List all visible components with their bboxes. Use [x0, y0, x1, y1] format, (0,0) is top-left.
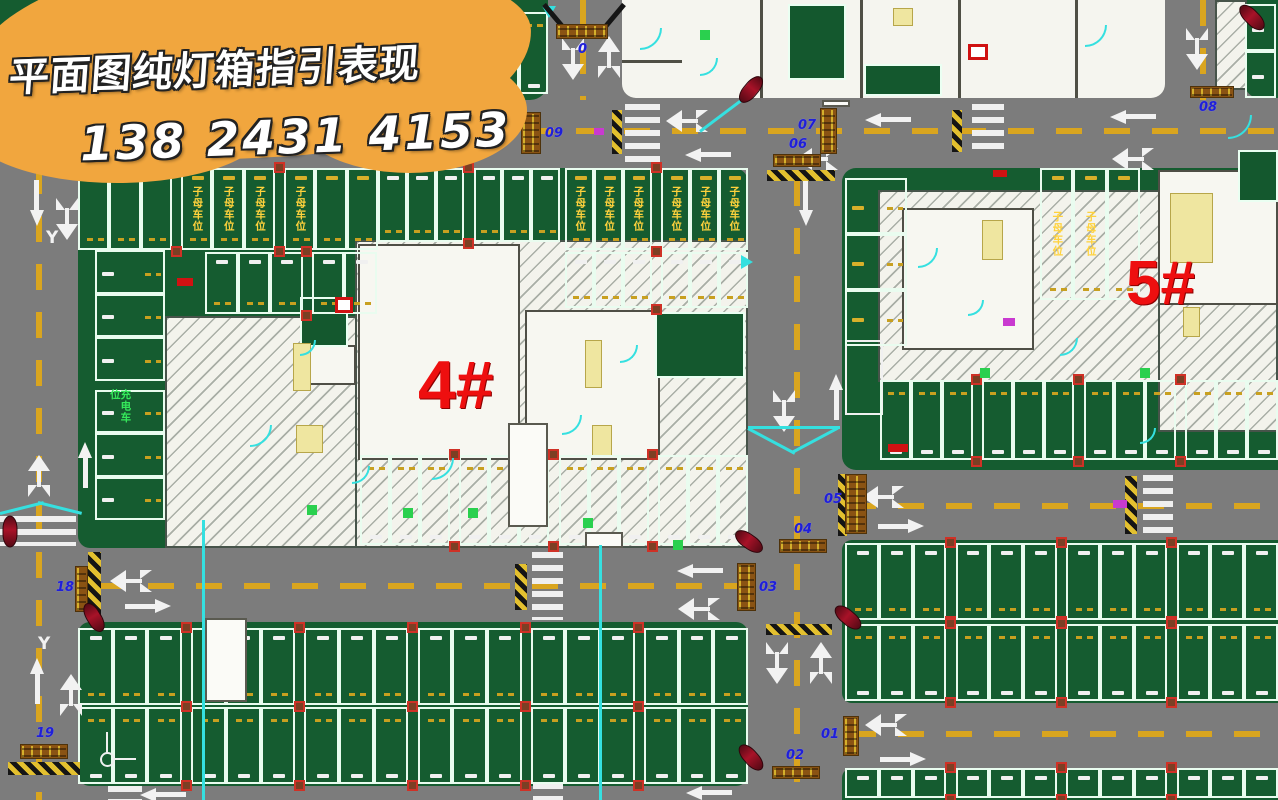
- parking-stall: [1210, 543, 1244, 620]
- arrow-tail: [73, 704, 82, 716]
- zebra-crossing: [532, 552, 563, 620]
- ornate-arrow: [1112, 148, 1154, 170]
- arrow-head: [685, 148, 701, 162]
- stall-number: [633, 260, 645, 264]
- stall-number: [499, 535, 511, 539]
- stall-number: [102, 498, 114, 502]
- parking-stall: [459, 455, 489, 545]
- stall-number: [370, 535, 382, 539]
- arrow-tail: [810, 672, 819, 684]
- stall-dashes: [1076, 636, 1094, 639]
- stall-dashes: [1076, 608, 1094, 611]
- stall-number: [1035, 551, 1047, 555]
- stall-dashes: [654, 719, 672, 722]
- column-marker: [1175, 374, 1186, 385]
- parking-stall: [690, 252, 719, 308]
- lightbox: [556, 24, 608, 39]
- ramp-line: [38, 501, 82, 515]
- building-5-label: 5#: [1126, 248, 1195, 319]
- parking-stall: 子母车位: [244, 168, 275, 250]
- parking-stall: [1066, 543, 1100, 620]
- parking-stall: [304, 628, 339, 705]
- arrow-shaft: [125, 604, 157, 609]
- stall-number: [317, 636, 329, 640]
- stall-dashes: [889, 608, 907, 611]
- stall-dashes: [481, 230, 499, 233]
- parking-stall: [644, 628, 679, 705]
- ornate-arrow: [598, 36, 620, 78]
- zebra-crossing: [1143, 475, 1173, 535]
- parking-stall: [989, 768, 1023, 798]
- stall-dashes: [1186, 608, 1204, 611]
- parking-stall: 子母车位: [719, 168, 748, 250]
- parking-stall: [594, 252, 623, 308]
- stall-dashes: [324, 238, 342, 241]
- parking-stall: [147, 707, 182, 784]
- parking-stall: 子母车位: [284, 168, 315, 250]
- stall-dashes: [654, 693, 672, 696]
- arrow-tail: [56, 198, 65, 210]
- fire-equipment-mark: [888, 444, 908, 452]
- stall-dashes: [1110, 608, 1128, 611]
- stall-dashes: [158, 719, 176, 722]
- parking-stall: [261, 628, 296, 705]
- magenta-annotation: [1003, 318, 1015, 326]
- stall-dashes: [1220, 608, 1238, 611]
- stall-dashes: [145, 316, 161, 319]
- ornate-arrow: [865, 714, 907, 736]
- parking-stall: [113, 707, 148, 784]
- column-marker: [548, 449, 559, 460]
- parking-stall: [619, 455, 649, 545]
- stall-number: [967, 551, 979, 555]
- parking-stall: [147, 628, 182, 705]
- parking-stall: [191, 707, 226, 784]
- column-marker: [181, 701, 192, 712]
- road-arrow: [865, 113, 911, 127]
- stall-number: [125, 774, 137, 778]
- shaft-room: [592, 425, 612, 457]
- stall-dashes: [1254, 608, 1272, 611]
- stall-number: [1078, 551, 1090, 555]
- arrow-tail: [708, 598, 720, 607]
- arrow-head: [140, 788, 156, 800]
- lightbox-number: 04: [794, 522, 812, 537]
- green-room: [864, 64, 942, 96]
- parking-stall: [1247, 380, 1278, 460]
- arrow-tail: [60, 704, 69, 716]
- exit-door-marker: [307, 505, 317, 515]
- column-marker: [1166, 762, 1177, 773]
- stall-dashes: [1033, 608, 1051, 611]
- parking-stall: [1044, 380, 1075, 460]
- lightbox-ticks: [845, 718, 857, 754]
- family-stall-label: 子母车位: [1085, 211, 1096, 257]
- exit-door-marker: [583, 518, 593, 528]
- parking-stall: [304, 707, 339, 784]
- stall-number: [281, 260, 293, 264]
- stall-dashes: [1186, 636, 1204, 639]
- stall-dashes: [510, 230, 528, 233]
- parking-stall: [374, 628, 409, 705]
- arrow-tail: [1142, 161, 1154, 170]
- arrow-shaft: [878, 524, 910, 529]
- stall-dashes: [293, 238, 311, 241]
- arrow-head: [829, 374, 843, 390]
- parking-row: 充电车位: [95, 250, 167, 520]
- arrow-shaft: [154, 792, 186, 797]
- parking-stall: [418, 628, 453, 705]
- column-marker: [1073, 374, 1084, 385]
- arrow-tail: [779, 642, 788, 654]
- stall-dashes: [497, 719, 515, 722]
- arrow-head: [865, 113, 881, 127]
- lightbox-ticks: [775, 156, 819, 165]
- arrow-shaft: [700, 790, 732, 795]
- ucs-axis-icon: [106, 732, 108, 754]
- parking-stall: [261, 707, 296, 784]
- column-marker: [633, 701, 644, 712]
- road-arrow: [685, 148, 731, 162]
- stall-dashes: [1144, 636, 1162, 639]
- parking-stall: [644, 707, 679, 784]
- arrow-shaft: [34, 180, 39, 212]
- family-stall-label: 子母车位: [192, 186, 203, 232]
- column-marker: [1056, 618, 1067, 629]
- parking-stall: [600, 707, 635, 784]
- lightbox: [737, 563, 756, 611]
- stall-number: [102, 455, 114, 459]
- arrow-head: [1110, 110, 1126, 124]
- stall-dashes: [887, 263, 903, 266]
- stall-number: [1112, 691, 1124, 695]
- stall-dashes: [597, 467, 615, 470]
- arrow-tail: [598, 66, 607, 78]
- column-marker: [651, 162, 662, 173]
- stall-dashes: [689, 693, 707, 696]
- road-arrow: [829, 374, 843, 420]
- arrow-head: [686, 786, 702, 800]
- stall-dashes: [158, 693, 176, 696]
- parking-stall: [95, 294, 165, 338]
- arrow-shaft: [775, 652, 779, 672]
- parking-stall: [531, 628, 566, 705]
- arrow-shaft: [607, 48, 611, 68]
- lightbox: [820, 108, 837, 154]
- stall-dashes: [1092, 392, 1110, 395]
- family-stall-label: 子母车位: [295, 186, 306, 232]
- promo-banner: 平面图纯灯箱指引表现 138 2431 4153: [0, 0, 537, 173]
- outlined-room: [845, 340, 883, 415]
- green-room: [655, 312, 745, 378]
- stall-number: [857, 691, 869, 695]
- stall-dashes: [428, 719, 446, 722]
- column-marker: [181, 780, 192, 791]
- red-symbol-box: [968, 44, 988, 60]
- parking-stall: [1134, 624, 1168, 701]
- stall-number: [857, 551, 869, 555]
- column-marker: [945, 697, 956, 708]
- car-icon: [732, 526, 767, 557]
- zebra-crossing: [108, 786, 142, 800]
- ornate-arrow: [678, 598, 720, 620]
- stall-number: [967, 776, 979, 780]
- stall-number: [1035, 776, 1047, 780]
- lightbox-number: 08: [1199, 100, 1217, 115]
- shaft-room: [296, 425, 323, 453]
- parking-stall: [879, 624, 913, 701]
- parking-stall: [713, 628, 748, 705]
- arrow-shaft: [37, 467, 41, 487]
- arrow-shaft: [834, 388, 839, 420]
- parking-stall: [1177, 624, 1211, 701]
- lightbox-ticks: [558, 26, 606, 37]
- parking-stall: [942, 380, 973, 460]
- ucs-axis-icon: [114, 758, 136, 760]
- parking-stall: [600, 628, 635, 705]
- parking-row: [880, 380, 1278, 462]
- stall-dashes: [221, 238, 239, 241]
- parking-row: 子母车位子母车位子母车位子母车位子母车位子母车位: [565, 168, 748, 252]
- parking-stall: [1216, 380, 1247, 460]
- zebra-crossing: [972, 104, 1004, 156]
- stall-number: [633, 176, 645, 180]
- stall-number: [430, 636, 442, 640]
- stall-number: [430, 535, 442, 539]
- family-stall-label: 子母车位: [633, 186, 644, 232]
- stall-number: [1252, 75, 1264, 79]
- parking-stall: [452, 707, 487, 784]
- stall-dashes: [414, 230, 432, 233]
- stall-number: [656, 774, 668, 778]
- magenta-annotation: [1113, 500, 1127, 508]
- arrow-head: [78, 442, 92, 458]
- parking-stall: [407, 168, 436, 242]
- column-marker: [1073, 456, 1084, 467]
- stall-dashes: [368, 467, 386, 470]
- stall-number: [1085, 176, 1097, 180]
- stall-number: [952, 450, 964, 454]
- parking-stall: [1100, 624, 1134, 701]
- parking-stall: [623, 252, 652, 308]
- arrow-shaft: [803, 180, 808, 212]
- parking-stall: [347, 168, 378, 250]
- stall-number: [465, 636, 477, 640]
- stall-dashes: [923, 636, 941, 639]
- stall-number: [604, 176, 616, 180]
- stall-number: [543, 774, 555, 778]
- stall-dashes: [385, 230, 403, 233]
- stall-dashes: [252, 238, 270, 241]
- stall-dashes: [88, 719, 106, 722]
- stall-number: [1146, 776, 1158, 780]
- stall-number: [891, 691, 903, 695]
- stall-dashes: [145, 456, 161, 459]
- column-marker: [633, 780, 644, 791]
- parking-row: [845, 178, 909, 346]
- stall-number: [1188, 776, 1200, 780]
- parking-stall: [1013, 380, 1044, 460]
- ornate-arrow: [1186, 28, 1208, 70]
- stall-dashes: [123, 719, 141, 722]
- parking-stall: [688, 455, 718, 545]
- parking-stall: 子母车位: [690, 168, 719, 250]
- parking-stall: [1245, 51, 1276, 98]
- stall-number: [102, 359, 114, 363]
- column-marker: [945, 618, 956, 629]
- stall-number: [925, 691, 937, 695]
- stall-number: [569, 535, 581, 539]
- exit-door-marker: [700, 30, 710, 40]
- column-marker: [463, 238, 474, 249]
- stall-number: [386, 636, 398, 640]
- parking-stall: [1066, 624, 1100, 701]
- stall-number: [90, 774, 102, 778]
- stall-dashes: [1050, 288, 1068, 291]
- family-stall-label: 子母车位: [671, 186, 682, 232]
- stall-number: [1256, 551, 1268, 555]
- road-arrow: [686, 786, 732, 800]
- column-marker: [294, 622, 305, 633]
- stall-dashes: [315, 693, 333, 696]
- road-arrow: [880, 752, 926, 766]
- stall-number: [1078, 691, 1090, 695]
- stall-dashes: [669, 296, 687, 299]
- stall-number: [529, 535, 541, 539]
- shaft-room: [893, 8, 913, 26]
- stall-number: [1256, 776, 1268, 780]
- lane-center-line: [850, 731, 1278, 737]
- parking-stall: [531, 168, 560, 242]
- stall-dashes: [355, 238, 373, 241]
- parking-stall: 子母车位: [212, 168, 243, 250]
- stall-dashes: [1225, 392, 1243, 395]
- stall-number: [1146, 691, 1158, 695]
- stall-dashes: [1220, 636, 1238, 639]
- shaft-room: [585, 340, 602, 388]
- stall-number: [238, 774, 250, 778]
- stall-dashes: [610, 719, 628, 722]
- stall-number: [102, 315, 114, 319]
- parking-stall: [989, 543, 1023, 620]
- parking-stall: [845, 624, 879, 701]
- arrow-tail: [892, 499, 904, 508]
- stall-dashes: [965, 608, 983, 611]
- stall-number: [578, 774, 590, 778]
- arrow-shaft: [879, 117, 911, 122]
- exit-door-marker: [468, 508, 478, 518]
- parking-stall: [913, 768, 947, 798]
- arrow-tail: [708, 611, 720, 620]
- ramp-line: [202, 520, 205, 800]
- arrow-tail: [766, 642, 775, 654]
- stall-dashes: [887, 319, 903, 322]
- family-stall-label: 子母车位: [254, 186, 265, 232]
- parking-stall: [1210, 768, 1244, 798]
- parking-stall: [1100, 543, 1134, 620]
- exit-door-marker: [980, 368, 990, 378]
- column-marker: [647, 449, 658, 460]
- stall-number: [726, 774, 738, 778]
- stall-dashes: [666, 467, 684, 470]
- stall-dashes: [271, 693, 289, 696]
- parking-stall: [1185, 380, 1216, 460]
- stall-dashes: [726, 467, 744, 470]
- arrow-head: [910, 752, 926, 766]
- stall-dashes: [631, 238, 649, 241]
- ornate-arrow: [766, 642, 788, 684]
- arrow-shaft: [691, 568, 723, 573]
- building-wall: [958, 0, 961, 98]
- arrow-shaft: [678, 119, 698, 123]
- arrow-shaft: [35, 672, 40, 704]
- stall-number: [160, 774, 172, 778]
- arrow-shaft: [122, 579, 142, 583]
- stall-number: [1112, 551, 1124, 555]
- road-arrow: [30, 658, 44, 704]
- stall-number: [691, 636, 703, 640]
- parking-stall: [565, 252, 594, 308]
- parking-stall: [1134, 768, 1168, 798]
- family-stall-label: 子母车位: [729, 186, 740, 232]
- stall-dashes: [965, 636, 983, 639]
- lightbox: [772, 766, 820, 779]
- road-arrow: [78, 442, 92, 488]
- stall-dashes: [724, 693, 742, 696]
- lightbox: [1190, 86, 1234, 98]
- column-marker: [407, 701, 418, 712]
- stall-dashes: [888, 392, 906, 395]
- stall-dashes: [1052, 392, 1070, 395]
- stall-dashes: [1021, 392, 1039, 395]
- arrow-tail: [611, 66, 620, 78]
- lightbox: [845, 474, 867, 534]
- parking-stall: [95, 250, 165, 294]
- shaft-room: [982, 220, 1003, 260]
- stall-number: [351, 636, 363, 640]
- stall-dashes: [145, 412, 161, 415]
- stall-dashes: [576, 693, 594, 696]
- road-arrow: [677, 564, 723, 578]
- magenta-annotation: [594, 128, 604, 135]
- stall-dashes: [573, 238, 591, 241]
- stall-dashes: [145, 499, 161, 502]
- parking-stall: [113, 628, 148, 705]
- stall-number: [1023, 450, 1035, 454]
- road-arrow: [1110, 110, 1156, 124]
- fire-equipment-mark: [177, 278, 193, 286]
- stall-dashes: [1123, 392, 1141, 395]
- stall-number: [356, 260, 368, 264]
- column-marker: [520, 622, 531, 633]
- parking-stall: [339, 707, 374, 784]
- parking-stall: [913, 543, 947, 620]
- stall-number: [671, 176, 683, 180]
- parking-stall: [238, 252, 271, 314]
- stall-number: [1188, 551, 1200, 555]
- stall-number: [295, 176, 307, 180]
- stall-dashes: [123, 693, 141, 696]
- stall-number: [317, 774, 329, 778]
- stall-number: [726, 636, 738, 640]
- column-marker: [945, 762, 956, 773]
- stall-dashes: [923, 608, 941, 611]
- parking-stall: [913, 624, 947, 701]
- stall-number: [323, 260, 335, 264]
- building-wall: [1075, 0, 1078, 98]
- parking-stall: [956, 768, 990, 798]
- stall-dashes: [398, 467, 416, 470]
